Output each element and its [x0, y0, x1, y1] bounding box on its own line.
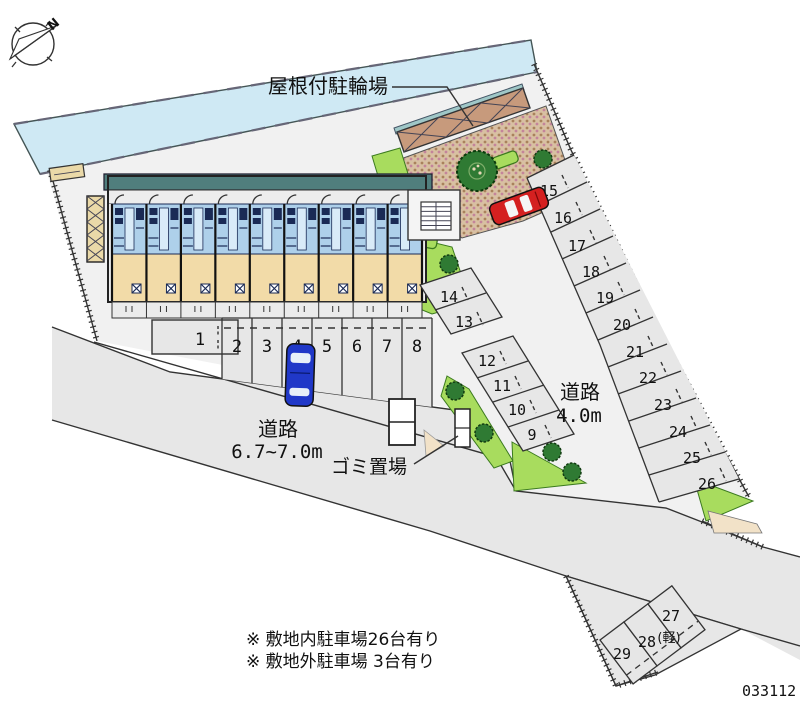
stall-number: 24	[669, 423, 687, 441]
plan-number: 033112	[742, 682, 796, 700]
balcony-strip	[112, 302, 422, 318]
stall-number: 17	[568, 237, 586, 255]
stall-number: 22	[639, 369, 657, 387]
stall-number: 6	[352, 337, 362, 357]
stall-number: 29	[613, 645, 631, 663]
stall-number: 27	[662, 607, 680, 625]
stall-number: 19	[596, 289, 614, 307]
site-plan: 29 28 27 (軽)	[0, 0, 800, 727]
large-tree-icon	[457, 151, 497, 191]
stall-number: 18	[582, 263, 600, 281]
stall-number: 2	[232, 337, 242, 357]
stall-number: 28	[638, 633, 656, 651]
stall-number: 26	[698, 475, 716, 493]
note-line-2: ※ 敷地外駐車場 3台有り	[246, 652, 435, 672]
road-sw-name: 道路	[258, 417, 298, 441]
stall-number: 25	[683, 449, 701, 467]
road-east-width: 4.0m	[556, 405, 602, 427]
stall-number: 1	[195, 330, 205, 350]
stall-number: 10	[508, 401, 526, 419]
sand-patch	[708, 511, 762, 533]
blue-car	[285, 344, 315, 407]
stall-number: 9	[527, 426, 536, 444]
note-line-1: ※ 敷地内駐車場26台有り	[246, 630, 440, 650]
stall-number: 7	[382, 337, 392, 357]
stall-number: 11	[493, 377, 511, 395]
stall-number: 5	[322, 337, 332, 357]
stall-number: 8	[412, 337, 422, 357]
site-plan-canvas: 29 28 27 (軽)	[0, 0, 800, 727]
stall-number: 14	[440, 288, 458, 306]
north-compass: N	[10, 16, 63, 67]
stall-number: 13	[455, 313, 473, 331]
bike-shelter-label: 屋根付駐輪場	[268, 74, 388, 98]
garbage-label: ゴミ置場	[331, 456, 407, 478]
east-stair	[408, 190, 460, 240]
stall-number: 16	[554, 209, 572, 227]
stall-number: 20	[613, 316, 631, 334]
stall-number: 12	[478, 352, 496, 370]
kei-car-label: (軽)	[657, 631, 680, 646]
west-stair	[87, 196, 104, 262]
stall-number: 23	[654, 396, 672, 414]
main-building	[49, 164, 460, 318]
road-east-name: 道路	[560, 380, 600, 404]
road-sw-width: 6.7~7.0m	[231, 441, 323, 463]
stall-number: 3	[262, 337, 272, 357]
stall-number: 21	[626, 343, 644, 361]
